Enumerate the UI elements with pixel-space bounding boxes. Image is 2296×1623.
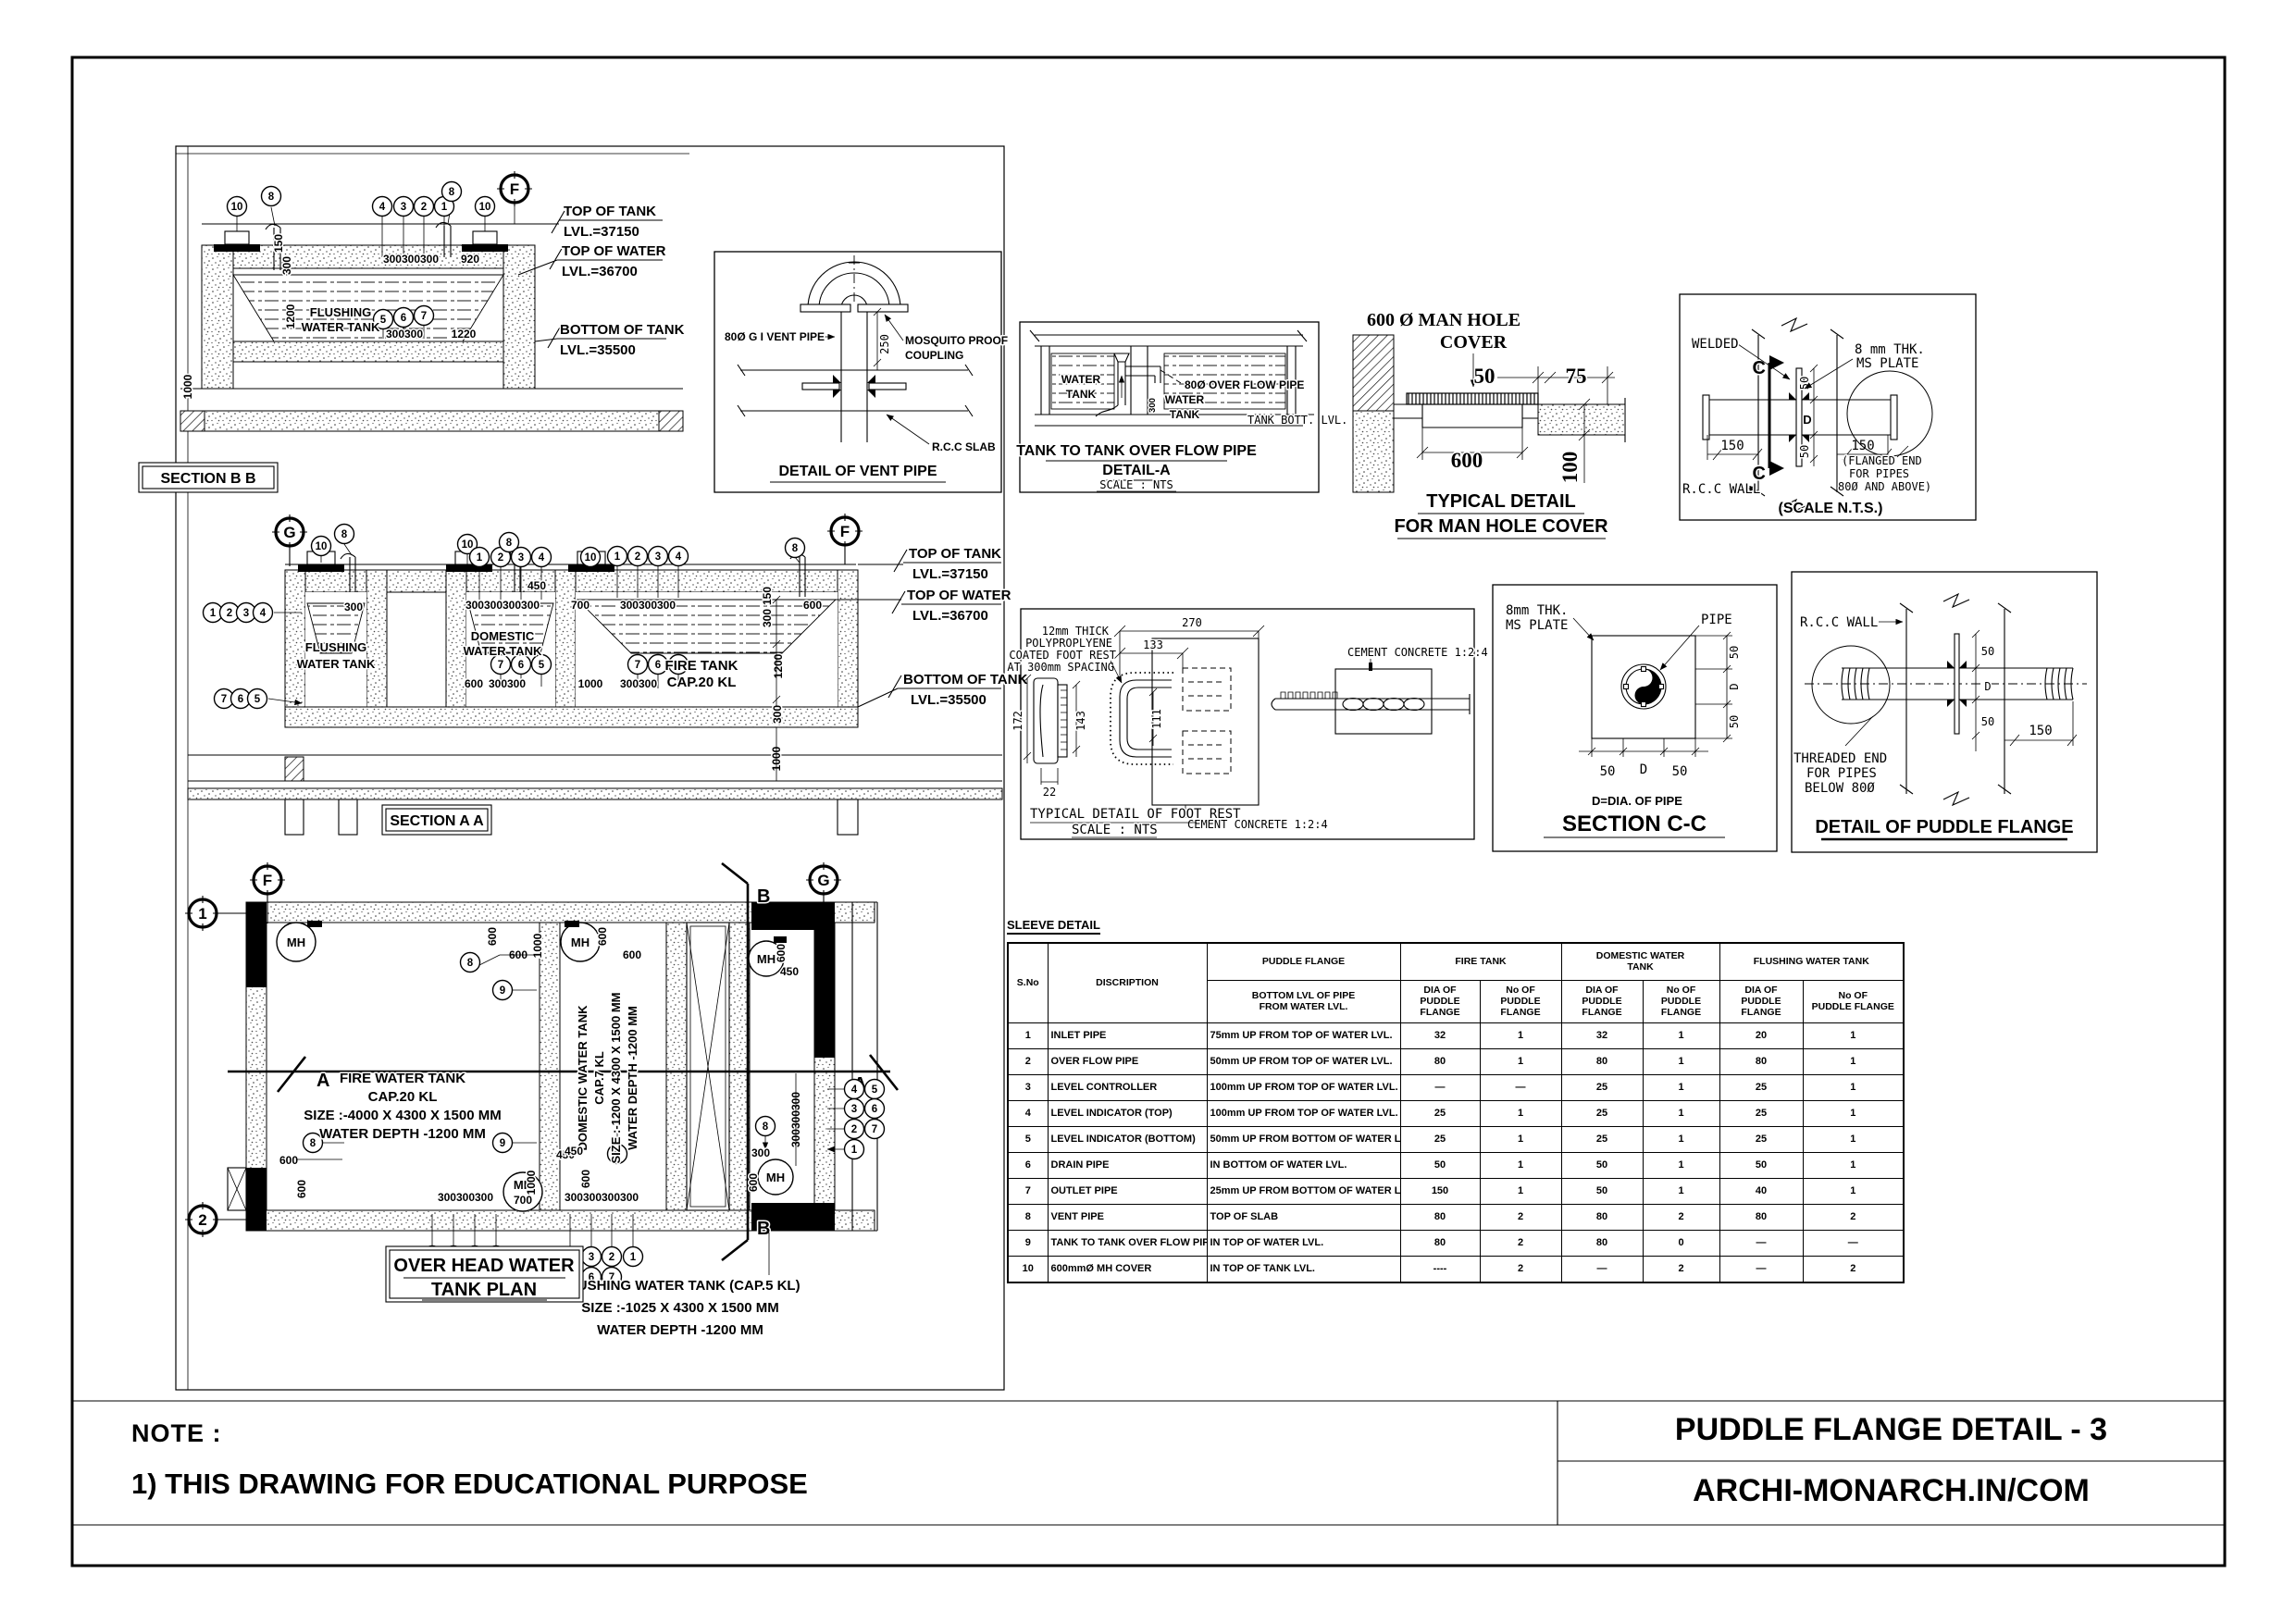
svg-text:8: 8 (341, 529, 348, 540)
manhole: MH (758, 1159, 793, 1195)
svg-text:10: 10 (479, 202, 491, 213)
svg-text:MH: MH (287, 935, 305, 949)
callout: 1 (845, 1140, 864, 1159)
table-cell: 1 (1643, 1178, 1719, 1204)
svg-text:1: 1 (630, 1252, 637, 1263)
svg-text:5: 5 (872, 1084, 878, 1096)
dim-50: 50 (1728, 715, 1741, 728)
table-row: 8VENT PIPETOP OF SLAB802802802 (1008, 1204, 1904, 1230)
dim: 1000 (578, 677, 603, 690)
svg-text:6: 6 (655, 660, 661, 671)
dim: 600 (803, 599, 822, 612)
callout: 4 (669, 547, 689, 566)
svg-text:3: 3 (589, 1252, 594, 1263)
svg-text:F: F (840, 523, 850, 540)
table-row: 5LEVEL INDICATOR (BOTTOM)50mm UP FROM BO… (1008, 1126, 1904, 1152)
table-cell: VENT PIPE (1048, 1204, 1207, 1230)
dim-300: 300 (1148, 398, 1158, 413)
callout: 5 (248, 689, 267, 709)
svg-text:8: 8 (763, 1121, 769, 1133)
level-top-of-tank: TOP OF TANK LVL.=37150 (858, 546, 1001, 582)
dim: 600 (486, 927, 499, 946)
fire-tank-label: CAP.20 KL (368, 1089, 438, 1105)
svg-text:5: 5 (254, 694, 261, 705)
table-cell: 50 (1400, 1152, 1480, 1178)
svg-text:2: 2 (498, 552, 503, 564)
dim: 600 (295, 1180, 308, 1198)
svg-text:2: 2 (227, 608, 232, 619)
callout: 6 (394, 308, 414, 328)
dim: 1200 (284, 304, 297, 328)
svg-text:B: B (757, 1219, 770, 1239)
svg-text:LVL.=37150: LVL.=37150 (564, 224, 639, 240)
table-cell: 2 (1480, 1230, 1561, 1256)
dim-d: D (1984, 680, 1991, 693)
tank-plan: A A B B F G 1 2 MH MH MH MH700 MH 8 9 8 … (185, 862, 898, 1338)
dim: 300300300 (383, 253, 439, 266)
tank-label: FLUSHING (305, 640, 366, 654)
dim: 300300300300 (465, 599, 540, 612)
dim-50: 50 (1728, 646, 1741, 659)
dim: 700 (571, 599, 590, 612)
table-cell: 9 (1008, 1230, 1048, 1256)
dim: 300300300 (438, 1191, 493, 1204)
svg-text:1: 1 (210, 608, 217, 619)
callout: 7 (628, 655, 648, 675)
manhole-heading: 600 Ø MAN HOLE (1367, 310, 1520, 330)
svg-text:9: 9 (500, 985, 505, 997)
table-cell: 1 (1643, 1074, 1719, 1100)
table-cell: 25mm UP FROM BOTTOM OF WATER LVL. (1207, 1178, 1400, 1204)
dim: 1000 (181, 374, 194, 399)
dia-note: D=DIA. OF PIPE (1592, 794, 1682, 808)
dim: 300 (344, 601, 363, 613)
scale-label: (SCALE N.T.S.) (1779, 501, 1883, 516)
level-top-of-water: TOP OF WATER LVL.=36700 (836, 588, 1011, 624)
table-cell: 1 (1480, 1048, 1561, 1074)
svg-text:B: B (757, 886, 770, 907)
dim-d: D (1803, 413, 1811, 427)
table-cell: 2 (1803, 1204, 1904, 1230)
svg-text:LVL.=36700: LVL.=36700 (562, 264, 638, 279)
tank-label: WATER TANK (464, 644, 542, 658)
dim: 1000 (525, 1170, 538, 1195)
dim: 600 (279, 1154, 298, 1167)
fire-tank-label: WATER DEPTH -1200 MM (319, 1126, 486, 1142)
table-row: 6DRAIN PIPEIN BOTTOM OF WATER LVL.501501… (1008, 1152, 1904, 1178)
threaded-note: BELOW 80Ø (1805, 781, 1875, 796)
callout: 10 (312, 537, 331, 556)
flange-weld-panel: C C 50 D 50 150 150 WELDED 8 mm THK. MS … (1680, 294, 1976, 520)
table-cell: 1 (1643, 1126, 1719, 1152)
svg-text:OVER HEAD WATER: OVER HEAD WATER (393, 1256, 575, 1276)
tank-label: DOMESTIC (471, 629, 535, 643)
dim-50: 50 (1474, 365, 1496, 388)
svg-text:2: 2 (198, 1211, 206, 1229)
plate-label: 8 mm THK. (1855, 342, 1925, 357)
callout: 10 (228, 197, 247, 217)
callout: 1 (624, 1247, 643, 1267)
table-cell: 6 (1008, 1152, 1048, 1178)
tank-label: WATER TANK (297, 657, 376, 671)
callout: 4 (532, 548, 552, 567)
vent-pipe-label: 80Ø G I VENT PIPE (725, 330, 825, 343)
stair-void (687, 923, 729, 1210)
table-cell: OVER FLOW PIPE (1048, 1048, 1207, 1074)
table-cell: 1 (1008, 1022, 1048, 1048)
tank-label: FLUSHING (310, 305, 371, 319)
table-cell: 40 (1719, 1178, 1803, 1204)
table-cell: 1 (1480, 1100, 1561, 1126)
table-cell: 10 (1008, 1256, 1048, 1282)
svg-text:MH: MH (757, 952, 776, 966)
col-header: DIA OF PUDDLE FLANGE (1561, 980, 1643, 1022)
dim-50: 50 (1798, 445, 1811, 458)
callout: 1 (470, 548, 490, 567)
dim: 300 (771, 705, 784, 724)
svg-text:1: 1 (614, 551, 621, 563)
svg-text:2: 2 (421, 202, 427, 213)
sleeve-table-body: 1INLET PIPE75mm UP FROM TOP OF WATER LVL… (1008, 1022, 1904, 1282)
svg-text:8: 8 (449, 187, 455, 198)
manhole-cover-right (462, 231, 508, 252)
svg-text:3: 3 (655, 551, 661, 563)
table-cell: 1 (1803, 1048, 1904, 1074)
table-cell: 1 (1480, 1152, 1561, 1178)
manhole-panel: 600 Ø MAN HOLE COVER 50 75 600 100 TYPIC… (1353, 310, 1625, 539)
sleeve-table-caption: SLEEVE DETAIL (1007, 918, 1100, 935)
callout: 4 (845, 1080, 864, 1099)
table-cell: IN TOP OF TANK LVL. (1207, 1256, 1400, 1282)
section-mark-c: C (1753, 464, 1766, 484)
table-cell: 1 (1643, 1152, 1719, 1178)
domestic-tank-label: SIZE :-1200 X 4300 X 1500 MM (609, 993, 623, 1164)
fire-tank-label: FIRE WATER TANK (340, 1071, 465, 1086)
table-cell: 25 (1719, 1126, 1803, 1152)
svg-text:MH: MH (571, 935, 590, 949)
table-cell: IN TOP OF WATER LVL. (1207, 1230, 1400, 1256)
col-header-discription: DISCRIPTION (1048, 943, 1207, 1022)
table-cell: 150 (1400, 1178, 1480, 1204)
callout: 7 (865, 1120, 885, 1139)
table-cell: 80 (1719, 1204, 1803, 1230)
tank-label: CAP.20 KL (667, 675, 737, 690)
callout: 10 (581, 548, 601, 567)
dim-50: 50 (1798, 377, 1811, 390)
tank-label: WATER TANK (302, 320, 380, 334)
svg-text:8: 8 (792, 543, 799, 554)
column-hatch (228, 1168, 246, 1210)
dim-50: 50 (1981, 715, 1994, 728)
dim-111: 111 (1150, 709, 1163, 729)
callout: 8 (262, 187, 281, 206)
callout: 7 (415, 306, 434, 326)
sheet-website: ARCHI-MONARCH.IN/COM (1558, 1473, 2225, 1509)
table-cell: 25 (1400, 1126, 1480, 1152)
coupling-label: MOSQUITO PROOF (905, 334, 1008, 347)
panel-title: DETAIL OF VENT PIPE (779, 464, 937, 479)
svg-text:A: A (316, 1071, 329, 1091)
dim-22: 22 (1043, 786, 1056, 799)
fire-tank-label: SIZE :-4000 X 4300 X 1500 MM (304, 1108, 501, 1123)
dim-270: 270 (1182, 616, 1202, 629)
panel-title: FOR MAN HOLE COVER (1394, 516, 1608, 537)
section-bb-title: SECTION B B (139, 463, 278, 492)
dim: 300300300300 (565, 1191, 639, 1204)
table-cell: 80 (1561, 1048, 1643, 1074)
domestic-tank-label: DOMESTIC WATER TANK (576, 1005, 590, 1151)
svg-text:TOP OF TANK: TOP OF TANK (909, 546, 1001, 562)
svg-text:4: 4 (260, 608, 267, 619)
table-cell: INLET PIPE (1048, 1022, 1207, 1048)
table-cell: LEVEL INDICATOR (TOP) (1048, 1100, 1207, 1126)
overflow-pipe-label: 80Ø OVER FLOW PIPE (1185, 378, 1304, 391)
col-header: No OF PUDDLE FLANGE (1803, 980, 1904, 1022)
svg-text:3: 3 (243, 608, 249, 619)
svg-text:7: 7 (221, 694, 227, 705)
sheet-title: PUDDLE FLANGE DETAIL - 3 (1558, 1412, 2225, 1448)
table-row: 7OUTLET PIPE25mm UP FROM BOTTOM OF WATER… (1008, 1178, 1904, 1204)
svg-text:6: 6 (401, 313, 406, 324)
table-cell: 25 (1719, 1100, 1803, 1126)
grid-bubble-1: 1 (185, 896, 246, 931)
table-cell: 1 (1803, 1074, 1904, 1100)
panel-title: DETAIL-A (1102, 463, 1171, 478)
pipe-label: PIPE (1701, 613, 1732, 627)
threaded-note: THREADED END (1793, 751, 1887, 766)
svg-text:4: 4 (539, 552, 545, 564)
table-cell: 2 (1480, 1256, 1561, 1282)
scale-label: SCALE : NTS (1099, 478, 1173, 491)
svg-text:LVL.=36700: LVL.=36700 (912, 608, 988, 624)
callout: 3 (845, 1099, 864, 1119)
table-row: 4LEVEL INDICATOR (TOP)100mm UP FROM TOP … (1008, 1100, 1904, 1126)
svg-text:10: 10 (316, 541, 328, 552)
grid-bubble-f: F (827, 514, 863, 564)
table-cell: — (1719, 1230, 1803, 1256)
table-cell: 80 (1561, 1230, 1643, 1256)
svg-text:LVL.=35500: LVL.=35500 (560, 342, 636, 358)
tank-label: TANK (1066, 388, 1097, 401)
callout: 9 (493, 981, 513, 1000)
plate-label: 8mm THK. (1506, 603, 1568, 618)
svg-text:10: 10 (231, 202, 243, 213)
callout: 9 (493, 1134, 513, 1153)
table-cell: 50 (1719, 1152, 1803, 1178)
dim-50: 50 (1672, 764, 1688, 779)
table-cell: — (1400, 1074, 1480, 1100)
table-cell: 75mm UP FROM TOP OF WATER LVL. (1207, 1022, 1400, 1048)
group-header-flushing-tank: FLUSHING WATER TANK (1719, 943, 1904, 980)
svg-text:F: F (510, 180, 519, 198)
welded-label: WELDED (1692, 337, 1739, 352)
table-cell: 2 (1803, 1256, 1904, 1282)
dim-133: 133 (1143, 638, 1163, 651)
table-cell: 25 (1561, 1126, 1643, 1152)
table-cell: 32 (1400, 1022, 1480, 1048)
tank-label: WATER (1061, 373, 1101, 386)
tank-bottom-label: TANK BOTT. LVL. (1247, 414, 1347, 427)
callout: 8 (442, 182, 462, 202)
svg-text:G: G (283, 524, 295, 541)
table-cell: 100mm UP FROM TOP OF WATER LVL. (1207, 1100, 1400, 1126)
overflow-panel: WATER TANK WATER TANK 80Ø OVER FLOW PIPE… (1016, 322, 1347, 492)
svg-text:7: 7 (872, 1124, 877, 1135)
footrest-note: COATED FOOT REST (1009, 649, 1116, 662)
table-cell: 25 (1561, 1100, 1643, 1126)
section-mark-c: C (1753, 358, 1766, 378)
dim: 300300300 (620, 599, 676, 612)
table-cell: 1 (1643, 1100, 1719, 1126)
svg-text:SECTION B B: SECTION B B (160, 471, 255, 487)
table-row: 9TANK TO TANK OVER FLOW PIPEIN TOP OF WA… (1008, 1230, 1904, 1256)
svg-text:2: 2 (851, 1124, 857, 1135)
svg-text:8: 8 (268, 192, 275, 203)
svg-text:TOP OF WATER: TOP OF WATER (562, 243, 666, 259)
table-cell: 2 (1643, 1256, 1719, 1282)
dim-50: 50 (1600, 764, 1616, 779)
table-cell: 80 (1400, 1048, 1480, 1074)
group-header-domestic-tank: DOMESTIC WATER TANK (1561, 943, 1719, 980)
section-aa-panel: G F 10 8 10 1 2 8 3 4 10 1 2 3 4 8 1 2 3… (188, 514, 1028, 835)
svg-text:5: 5 (539, 660, 545, 671)
table-cell: 7 (1008, 1178, 1048, 1204)
table-cell: — (1719, 1256, 1803, 1282)
table-cell: 1 (1643, 1048, 1719, 1074)
col-header-sno: S.No (1008, 943, 1048, 1022)
callout: 3 (582, 1247, 602, 1267)
dim: 300 (761, 609, 774, 627)
level-top-of-tank: TOP OF TANK LVL.=37150 (518, 204, 663, 240)
dim: 150 (761, 587, 774, 605)
col-header: No OF PUDDLE FLANGE (1480, 980, 1561, 1022)
svg-text:1: 1 (198, 905, 206, 923)
group-header-fire-tank: FIRE TANK (1400, 943, 1561, 980)
dim-172: 172 (1011, 711, 1024, 731)
dim-600: 600 (1451, 449, 1483, 472)
callout: 4 (373, 197, 392, 217)
dim: 600 (579, 1170, 592, 1188)
dim-100: 100 (1558, 452, 1582, 484)
footrest-side-view: 172 143 22 (1011, 675, 1087, 799)
callout: 6 (865, 1099, 885, 1119)
table-cell: 1 (1480, 1178, 1561, 1204)
callout: 8 (786, 539, 805, 558)
footrest-front-view: 111 270 133 (1111, 616, 1264, 805)
svg-text:4: 4 (379, 202, 386, 213)
svg-text:6: 6 (518, 660, 524, 671)
section-bb-panel: 10 8 4 3 2 1 8 10 F 5 6 7 FLUSHING WATER… (139, 171, 685, 492)
col-header: DIA OF PUDDLE FLANGE (1719, 980, 1803, 1022)
table-row: 1INLET PIPE75mm UP FROM TOP OF WATER LVL… (1008, 1022, 1904, 1048)
table-cell: 600mmØ MH COVER (1048, 1256, 1207, 1282)
dim: 600 (775, 944, 788, 962)
table-row: 3LEVEL CONTROLLER100mm UP FROM TOP OF WA… (1008, 1074, 1904, 1100)
footrest-note: AT 300mm SPACING (1007, 661, 1114, 674)
table-row: 10600mmØ MH COVERIN TOP OF TANK LVL.----… (1008, 1256, 1904, 1282)
table-cell: ---- (1400, 1256, 1480, 1282)
dim: 1220 (452, 328, 477, 341)
cement-label: CEMENT CONCRETE 1:2:4 (1347, 646, 1488, 659)
callout: 3 (512, 548, 531, 567)
dim: 1000 (531, 933, 544, 958)
table-cell: 2 (1008, 1048, 1048, 1074)
callout: 2 (602, 1247, 622, 1267)
plate-label: MS PLATE (1856, 356, 1918, 371)
dim: 600 (623, 948, 641, 961)
flanged-note: 80Ø AND ABOVE) (1838, 480, 1931, 493)
dim-250: 250 (878, 334, 891, 354)
threaded-note: FOR PIPES (1806, 766, 1877, 781)
dim-50: 50 (1981, 645, 1994, 658)
table-cell: 2 (1480, 1204, 1561, 1230)
svg-text:BOTTOM OF TANK: BOTTOM OF TANK (903, 672, 1028, 688)
table-cell: TOP OF SLAB (1207, 1204, 1400, 1230)
table-cell: 50mm UP FROM BOTTOM OF WATER LVL. (1207, 1126, 1400, 1152)
tank-label: FIRE TANK (665, 658, 738, 674)
table-cell: 1 (1803, 1178, 1904, 1204)
flanged-note: (FLANGED END (1842, 454, 1922, 467)
svg-text:TANK PLAN: TANK PLAN (431, 1280, 537, 1300)
table-cell: 3 (1008, 1074, 1048, 1100)
callout: 4 (254, 603, 273, 623)
panel-title: TANK TO TANK OVER FLOW PIPE (1016, 443, 1257, 459)
table-cell: — (1561, 1256, 1643, 1282)
grid-bubble-g: G (272, 514, 307, 566)
svg-text:8: 8 (310, 1138, 316, 1149)
table-cell: — (1480, 1074, 1561, 1100)
dim: 300300 (489, 677, 526, 690)
svg-text:1: 1 (477, 552, 483, 564)
dim: 450 (565, 1145, 583, 1158)
table-cell: DRAIN PIPE (1048, 1152, 1207, 1178)
table-cell: 1 (1643, 1022, 1719, 1048)
svg-text:7: 7 (498, 660, 503, 671)
table-cell: 1 (1803, 1100, 1904, 1126)
svg-text:2: 2 (609, 1252, 614, 1263)
panel-title: SECTION C-C (1562, 811, 1706, 836)
note-line: 1) THIS DRAWING FOR EDUCATIONAL PURPOSE (131, 1468, 808, 1501)
table-cell: 100mm UP FROM TOP OF WATER LVL. (1207, 1074, 1400, 1100)
slab-label: R.C.C SLAB (932, 440, 996, 453)
dim: 600 (465, 677, 483, 690)
svg-text:SECTION A A: SECTION A A (390, 813, 484, 829)
table-cell: 2 (1643, 1204, 1719, 1230)
table-cell: 1 (1480, 1126, 1561, 1152)
dim-143: 143 (1074, 711, 1087, 731)
panel-title: DETAIL OF PUDDLE FLANGE (1815, 817, 2073, 837)
callout: 8 (756, 1117, 776, 1136)
level-bottom-of-tank: BOTTOM OF TANK LVL.=35500 (535, 322, 685, 358)
svg-text:9: 9 (500, 1138, 505, 1149)
flushing-tank-label: SIZE :-1025 X 4300 X 1500 MM (581, 1300, 778, 1316)
table-cell: LEVEL INDICATOR (BOTTOM) (1048, 1126, 1207, 1152)
table-cell: 20 (1719, 1022, 1803, 1048)
svg-text:7: 7 (421, 311, 427, 322)
table-cell: 4 (1008, 1100, 1048, 1126)
panel-title: TYPICAL DETAIL (1426, 491, 1575, 512)
table-cell: 80 (1719, 1048, 1803, 1074)
footrest-panel: 172 143 22 111 270 133 12mm THICK POLYPR… (1007, 609, 1487, 839)
svg-text:8: 8 (467, 958, 474, 969)
tank-label: WATER (1165, 393, 1205, 406)
table-cell: 50 (1561, 1178, 1643, 1204)
table-cell: — (1803, 1230, 1904, 1256)
manhole-cover-left (214, 231, 260, 252)
svg-text:LVL.=35500: LVL.=35500 (911, 692, 987, 708)
manhole-heading: COVER (1440, 332, 1508, 353)
puddle-flange-panel: 50 D 50 150 R.C.C WALL THREADED END FOR … (1792, 572, 2097, 852)
